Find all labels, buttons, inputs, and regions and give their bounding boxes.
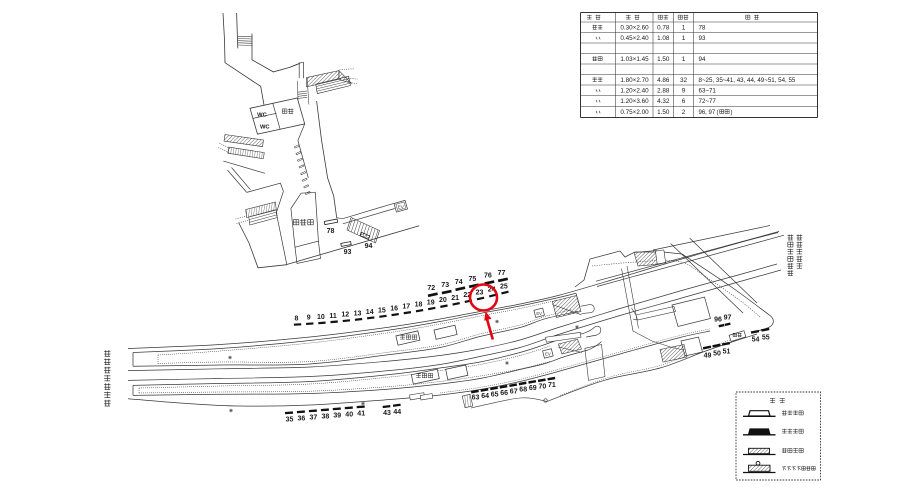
svg-text:17: 17 [402, 304, 410, 311]
svg-text:4.86: 4.86 [657, 77, 670, 84]
svg-text:1: 1 [682, 35, 686, 42]
svg-text:67: 67 [510, 388, 518, 395]
svg-text:49: 49 [704, 352, 712, 359]
svg-text:8: 8 [295, 316, 299, 323]
svg-text:94: 94 [699, 56, 706, 63]
svg-text:93: 93 [699, 35, 706, 42]
svg-text:): ) [731, 110, 733, 116]
svg-text:1.50: 1.50 [657, 56, 670, 63]
svg-text:55: 55 [762, 335, 770, 342]
svg-text:1: 1 [682, 56, 686, 63]
svg-text:37: 37 [310, 414, 318, 421]
svg-text:69: 69 [529, 385, 537, 392]
svg-text:21: 21 [451, 295, 459, 302]
svg-text:64: 64 [481, 393, 489, 400]
svg-text:97: 97 [724, 315, 732, 322]
svg-text:1: 1 [682, 25, 686, 32]
svg-text:(: ( [717, 110, 719, 116]
svg-text:44: 44 [393, 409, 401, 416]
svg-text:39: 39 [333, 412, 341, 419]
svg-text:93: 93 [344, 249, 352, 256]
svg-text:72~77: 72~77 [699, 98, 717, 105]
svg-text:18: 18 [415, 302, 423, 309]
svg-text:36: 36 [298, 415, 306, 422]
svg-text:0.30×2.60: 0.30×2.60 [620, 25, 649, 32]
svg-text:EV: EV [398, 204, 405, 209]
svg-text:16: 16 [390, 306, 398, 313]
svg-text:1.20×2.40: 1.20×2.40 [620, 88, 649, 95]
svg-text:72: 72 [427, 285, 435, 292]
svg-text:1.50: 1.50 [657, 109, 670, 116]
svg-text:41: 41 [357, 410, 365, 417]
svg-text:9: 9 [307, 315, 311, 322]
svg-text:94: 94 [365, 243, 373, 250]
svg-text:14: 14 [366, 309, 374, 316]
svg-text:EV: EV [536, 311, 542, 316]
svg-text:54: 54 [752, 337, 760, 344]
svg-text:25: 25 [500, 284, 508, 291]
svg-text:71: 71 [548, 382, 556, 389]
svg-text:96, 97: 96, 97 [699, 110, 716, 116]
svg-text:23: 23 [476, 290, 484, 297]
svg-text:15: 15 [378, 307, 386, 314]
svg-text:WC: WC [260, 125, 270, 131]
svg-text:35: 35 [286, 416, 294, 423]
svg-text:9: 9 [682, 88, 686, 95]
svg-text:63: 63 [472, 395, 480, 402]
svg-text:78: 78 [327, 228, 335, 235]
svg-text:0.78: 0.78 [657, 25, 670, 32]
svg-text:76: 76 [484, 273, 492, 280]
svg-text:11: 11 [329, 313, 337, 320]
svg-text:1.20×3.60: 1.20×3.60 [620, 98, 649, 105]
svg-text:12: 12 [341, 312, 349, 319]
svg-text:50: 50 [713, 350, 721, 357]
svg-text:96: 96 [714, 317, 722, 324]
svg-text:75: 75 [469, 276, 477, 283]
svg-text:63~71: 63~71 [699, 88, 717, 95]
svg-text:32: 32 [680, 77, 688, 84]
svg-text:78: 78 [699, 25, 706, 32]
svg-text:38: 38 [322, 413, 330, 420]
svg-text:66: 66 [500, 390, 508, 397]
svg-text:70: 70 [539, 383, 547, 390]
svg-text:51: 51 [723, 349, 731, 356]
svg-text:8~25, 35~41, 43, 44, 49~51, 54: 8~25, 35~41, 43, 44, 49~51, 54, 55 [699, 77, 796, 84]
svg-text:WC: WC [257, 113, 267, 119]
svg-text:6: 6 [682, 98, 686, 105]
svg-text:10: 10 [317, 314, 325, 321]
svg-text:74: 74 [455, 279, 463, 286]
svg-text:77: 77 [498, 270, 506, 277]
svg-text:4.32: 4.32 [657, 98, 670, 105]
svg-text:68: 68 [519, 387, 527, 394]
svg-text:1.80×2.70: 1.80×2.70 [620, 77, 649, 84]
svg-text:40: 40 [345, 411, 353, 418]
svg-text:19: 19 [427, 300, 435, 307]
svg-text:EV: EV [545, 352, 551, 357]
svg-text:73: 73 [441, 282, 449, 289]
svg-text:20: 20 [439, 297, 447, 304]
svg-text:43: 43 [383, 410, 391, 417]
svg-text:0.75×2.00: 0.75×2.00 [620, 109, 649, 116]
svg-text:0.45×2.40: 0.45×2.40 [620, 35, 649, 42]
svg-text:2.88: 2.88 [657, 88, 670, 95]
svg-text:1.03×1.45: 1.03×1.45 [620, 56, 649, 63]
svg-text:13: 13 [354, 310, 362, 317]
svg-text:1.08: 1.08 [657, 35, 670, 42]
svg-text:2: 2 [682, 109, 686, 116]
svg-text:65: 65 [491, 392, 499, 399]
